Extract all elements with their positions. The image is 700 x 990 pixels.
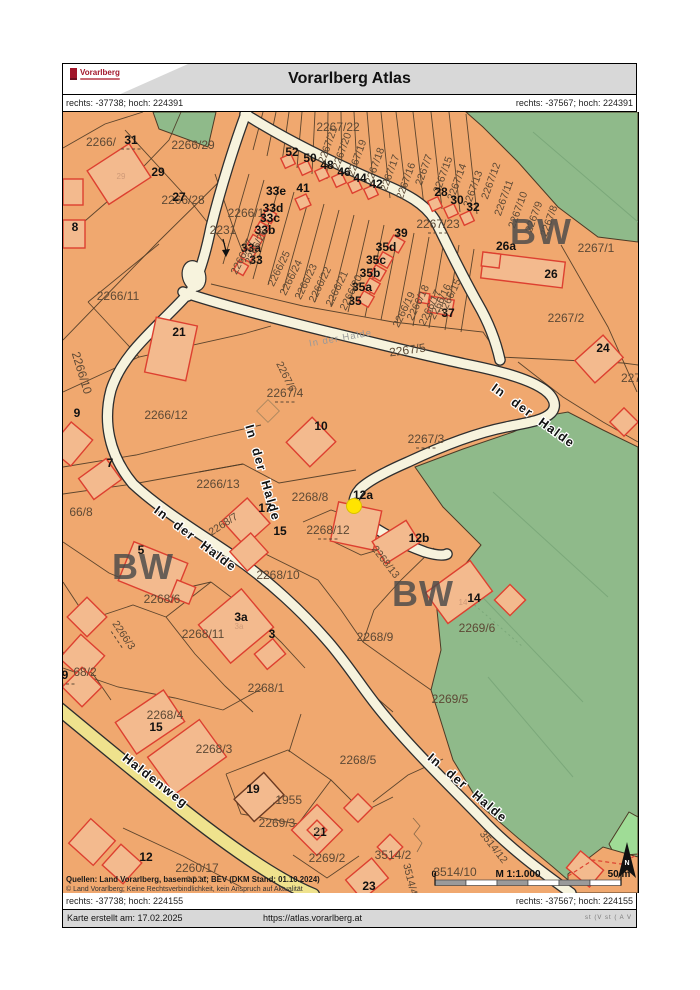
map-label-group: 2268/8 xyxy=(292,490,329,504)
scalebar-segment xyxy=(528,880,559,886)
house-number-label: 19 xyxy=(246,782,260,796)
map-label-group: 2268/12 xyxy=(306,523,350,539)
map-label-group: 30 xyxy=(450,193,464,207)
house-number-label: 3 xyxy=(269,627,276,641)
page: { "header": {"title": "Vorarlberg Atlas"… xyxy=(0,0,700,990)
house-number-label: 24 xyxy=(596,341,610,355)
parcel-number-label: .1955 xyxy=(272,793,302,807)
parcel-number-label: 2266/12 xyxy=(144,408,188,422)
map-label-group: 29 xyxy=(151,165,165,179)
parcel-number-label: 2269/3 xyxy=(259,816,296,830)
house-number-label: 27 xyxy=(172,190,186,204)
house-number-label: 26a xyxy=(496,239,516,253)
map-label-group: 2268/1 xyxy=(248,681,285,695)
parcel-number-label: 2269/6 xyxy=(459,621,496,635)
map-label-group: 2268/6 xyxy=(144,592,181,606)
map-label-group: 15 xyxy=(273,524,287,538)
map-label-group: .1955 xyxy=(272,793,302,807)
coord-bottom-right: rechts: -37567; hoch: 224155 xyxy=(516,896,633,906)
parcel-number-label: 14 xyxy=(459,598,468,607)
house-number-label: 23 xyxy=(362,879,376,893)
parcel-number-label: 2267/1 xyxy=(578,241,615,255)
scalebar-segment xyxy=(590,880,621,886)
map-label-group: 2268/3 xyxy=(196,742,233,756)
parcel-number-label: 2260/17 xyxy=(175,861,219,875)
map-label-group: 2268/9 xyxy=(357,630,394,644)
coordinate-bar-top: rechts: -37738; hoch: 224391 rechts: -37… xyxy=(62,95,637,112)
parcel-number-label: 2268/1 xyxy=(248,681,285,695)
map-canvas[interactable]: 2266/312266/29292266/282782266/122312266… xyxy=(63,112,638,893)
scalebar-segment xyxy=(497,880,528,886)
bw-zone-label: BW xyxy=(510,211,572,252)
map-label-group: 2267/1 xyxy=(578,241,615,255)
map-label-group: BW xyxy=(112,546,174,587)
parcel-number-label: 2268/9 xyxy=(357,630,394,644)
house-number-label: 52 xyxy=(285,145,299,159)
house-number-label: 8 xyxy=(72,220,79,234)
parcel-number-label: 3514/2 xyxy=(375,848,412,862)
map-label-group: 2266/13 xyxy=(196,477,240,491)
coordinate-bar-bottom: rechts: -37738; hoch: 224155 rechts: -37… xyxy=(62,893,637,910)
map-label-group: 14 xyxy=(459,598,468,607)
map-label-group: 2266/29 xyxy=(171,138,215,152)
house-number-label: 14 xyxy=(467,591,481,605)
scalebar-segment xyxy=(559,880,590,886)
house-number-label: 30 xyxy=(450,193,464,207)
map-label-group: 39 xyxy=(394,226,408,240)
map-label-group: 41 xyxy=(296,181,310,195)
house-number-label: 15 xyxy=(149,720,163,734)
parcel-number-label: 2268/3 xyxy=(196,742,233,756)
map-label-group: 52 xyxy=(285,145,299,159)
parcel-number-label: 2269/5 xyxy=(432,692,469,706)
map-label-group: 2266/ xyxy=(86,135,117,149)
map-label-group: 8 xyxy=(72,220,79,234)
map-label-group: 2268/11 xyxy=(182,627,225,641)
scalebar-zero: 0 xyxy=(431,869,436,879)
house-number-label: 21 xyxy=(172,325,186,339)
map-label-group: 7 xyxy=(107,456,114,470)
house-number-label: 28 xyxy=(434,185,448,199)
page-title: Vorarlberg Atlas xyxy=(63,70,636,88)
map-label-group: 23 xyxy=(362,879,376,893)
footer-bar: Karte erstellt am: 17.02.2025 https://at… xyxy=(62,910,637,928)
map-label-group: 33e xyxy=(266,184,286,198)
parcel-number-label: 66/8 xyxy=(69,505,93,519)
map-label-group: 3514/10 xyxy=(433,865,477,879)
parcel-number-label: 2268/8 xyxy=(292,490,329,504)
parcel-number-label: 2269/2 xyxy=(309,851,346,865)
map-label-group: 66/8 xyxy=(69,505,93,519)
house-number-label: 26 xyxy=(544,267,558,281)
map-label-group: 2267/3 xyxy=(408,432,445,448)
map-label-group: 2269/5 xyxy=(432,692,469,706)
parcel-number-label: 2267/23 xyxy=(416,217,460,231)
map-label-group: 28 xyxy=(434,185,448,199)
house-number-label: 41 xyxy=(296,181,310,195)
coord-top-left: rechts: -37738; hoch: 224391 xyxy=(66,98,183,108)
map-label-group: 32 xyxy=(466,200,480,214)
scalebar-ratio: M 1:1.000 xyxy=(495,869,540,880)
house-number-label: 15 xyxy=(273,524,287,538)
map-label-group: 3 xyxy=(269,627,276,641)
coord-top-right: rechts: -37567; hoch: 224391 xyxy=(516,98,633,108)
house-number-label: 12b xyxy=(409,531,430,545)
map-label-group: 2268/5 xyxy=(340,753,377,767)
map-label-group: 2267/2 xyxy=(548,311,585,325)
parcel-number-label: 2266/13 xyxy=(196,477,240,491)
map-label-group: 227 xyxy=(621,371,638,385)
parcel-number-label: 3514/10 xyxy=(433,865,477,879)
parcel-number-label: 2266/ xyxy=(86,135,117,149)
map-label-group: 2231 xyxy=(210,223,237,237)
house-number-label: 17 xyxy=(258,501,272,515)
map-label-group: 24 xyxy=(596,341,610,355)
scalebar-segment xyxy=(435,880,466,886)
coord-bottom-left: rechts: -37738; hoch: 224155 xyxy=(66,896,183,906)
map-label-group: 9 xyxy=(74,406,81,420)
house-number-label: 35d xyxy=(376,240,397,254)
building-outline xyxy=(63,179,83,205)
map-label-group: 21 xyxy=(315,827,324,836)
parcel-number-label: 2267/3 xyxy=(408,432,445,446)
map-label-group: 50 xyxy=(303,151,317,165)
house-number-label: 10 xyxy=(314,419,328,433)
map-label-group: 68/2 xyxy=(73,665,97,679)
map-label-group: BW xyxy=(510,211,572,252)
map-attribution-sources: Quellen: Land Vorarlberg, basemap.at; BE… xyxy=(66,875,320,884)
house-number-label: 32 xyxy=(466,200,480,214)
parcel-number-label: 227 xyxy=(621,371,638,385)
scalebar-segment xyxy=(466,880,497,886)
map-label-group: 35c xyxy=(366,253,386,267)
map-container: 2266/312266/29292266/282782266/122312266… xyxy=(62,112,639,893)
map-label-group: 29 xyxy=(117,172,126,181)
bw-zone-label: BW xyxy=(392,573,454,614)
house-number-label: 39 xyxy=(394,226,408,240)
atlas-url[interactable]: https://atlas.vorarlberg.at xyxy=(263,913,362,923)
map-attribution-copyright: © Land Vorarlberg; Keine Rechtsverbindli… xyxy=(66,885,303,893)
house-number-label: 9 xyxy=(74,406,81,420)
map-label-group: 12 xyxy=(139,850,153,864)
map-label-group: 35d xyxy=(376,240,397,254)
header-bar: Vorarlberg Vorarlberg Atlas xyxy=(62,63,637,95)
map-label-group: 2266/11 xyxy=(97,289,140,303)
map-label-group: 12b xyxy=(409,531,430,545)
house-number-label: 12 xyxy=(139,850,153,864)
map-created-date: Karte erstellt am: 17.02.2025 xyxy=(67,913,183,923)
parcel-number-label: 2266/29 xyxy=(171,138,215,152)
map-label-group: 27 xyxy=(172,190,186,204)
house-number-label: 31 xyxy=(124,133,138,147)
map-label-group: 21 xyxy=(172,325,186,339)
house-number-label: 9 xyxy=(63,668,69,682)
parcel-number-label: 21 xyxy=(315,827,324,836)
house-number-label: 33e xyxy=(266,184,286,198)
house-number-label: 7 xyxy=(107,456,114,470)
map-label-group: 3a xyxy=(235,622,244,631)
map-label-group: 2266/12 xyxy=(144,408,188,422)
map-label-group: 2268/10 xyxy=(256,568,300,582)
selected-point-marker[interactable] xyxy=(347,499,362,514)
map-label-group: 26 xyxy=(544,267,558,281)
parcel-number-label: 3a xyxy=(235,622,244,631)
house-number-label: 29 xyxy=(151,165,165,179)
footer-stamps: st (V st ( A V xyxy=(585,915,632,921)
house-number-label: 50 xyxy=(303,151,317,165)
map-label-group: 2269/6 xyxy=(459,621,496,635)
parcel-number-label: 68/2 xyxy=(73,665,97,679)
parcel-number-label: 2231 xyxy=(210,223,237,237)
north-arrow-n: N xyxy=(624,860,629,867)
map-label-group: BW xyxy=(392,573,454,614)
map-label-group: 2269/3 xyxy=(259,816,296,830)
house-number-label: 35c xyxy=(366,253,386,267)
parcel-number-label: 2268/12 xyxy=(306,523,350,537)
parcel-number-label: 2268/10 xyxy=(256,568,300,582)
parcel-number-label: 2268/5 xyxy=(340,753,377,767)
map-label-group: 17 xyxy=(258,501,272,515)
parcel-number-label: 2268/6 xyxy=(144,592,181,606)
map-label-group: 2269/2 xyxy=(309,851,346,865)
map-label-group: 2267/23 xyxy=(416,217,460,233)
map-label-group: 19 xyxy=(246,782,260,796)
map-label-group: 3514/2 xyxy=(375,848,412,862)
map-label-group: 14 xyxy=(467,591,481,605)
parcel-number-label: 29 xyxy=(117,172,126,181)
parcel-number-label: 2266/11 xyxy=(97,289,140,303)
parcel-number-label: 2267/2 xyxy=(548,311,585,325)
map-label-group: 10 xyxy=(314,419,328,433)
bw-zone-label: BW xyxy=(112,546,174,587)
building-outline xyxy=(481,252,501,268)
map-label-group: 15 xyxy=(149,720,163,734)
map-label-group: 26a xyxy=(496,239,516,253)
parcel-number-label: 2268/11 xyxy=(182,627,225,641)
